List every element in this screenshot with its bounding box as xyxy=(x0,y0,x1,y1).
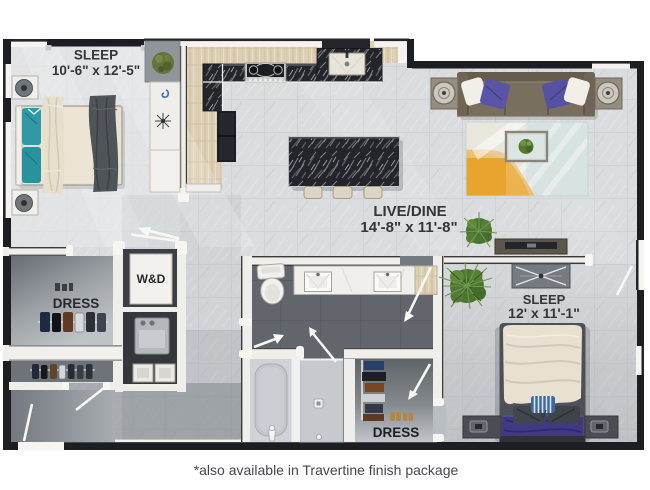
svg-text:12' x 11'-1": 12' x 11'-1" xyxy=(508,305,580,321)
svg-text:LIVE/DINE: LIVE/DINE xyxy=(373,203,446,220)
svg-text:10'-6" x 12'-5": 10'-6" x 12'-5" xyxy=(52,63,140,78)
svg-text:W&D: W&D xyxy=(137,272,166,286)
svg-text:14'-8" x 11'-8": 14'-8" x 11'-8" xyxy=(360,219,457,236)
svg-text:DRESS: DRESS xyxy=(53,296,100,311)
svg-text:SLEEP: SLEEP xyxy=(74,48,118,63)
svg-text:DRESS: DRESS xyxy=(373,425,420,440)
svg-text:*also available in Travertine: *also available in Travertine finish pac… xyxy=(194,462,459,478)
